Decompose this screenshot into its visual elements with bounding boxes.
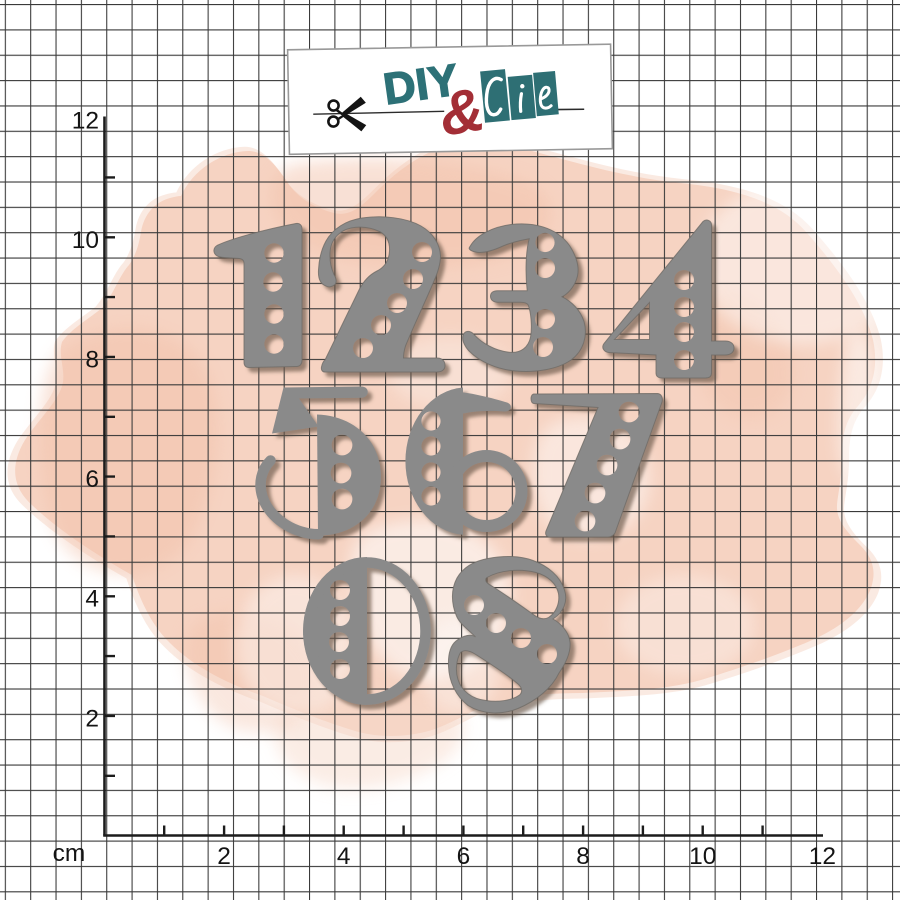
svg-text:6: 6 xyxy=(457,843,471,870)
svg-text:12: 12 xyxy=(809,843,836,870)
svg-text:6: 6 xyxy=(85,466,99,493)
svg-text:cm: cm xyxy=(53,840,86,867)
svg-text:10: 10 xyxy=(72,227,99,254)
svg-text:8: 8 xyxy=(85,347,99,374)
svg-text:2: 2 xyxy=(217,843,231,870)
svg-text:4: 4 xyxy=(337,843,351,870)
svg-text:4: 4 xyxy=(85,586,99,613)
svg-text:8: 8 xyxy=(576,843,590,870)
svg-text:12: 12 xyxy=(72,108,99,135)
svg-text:2: 2 xyxy=(85,706,99,733)
svg-text:10: 10 xyxy=(689,843,716,870)
